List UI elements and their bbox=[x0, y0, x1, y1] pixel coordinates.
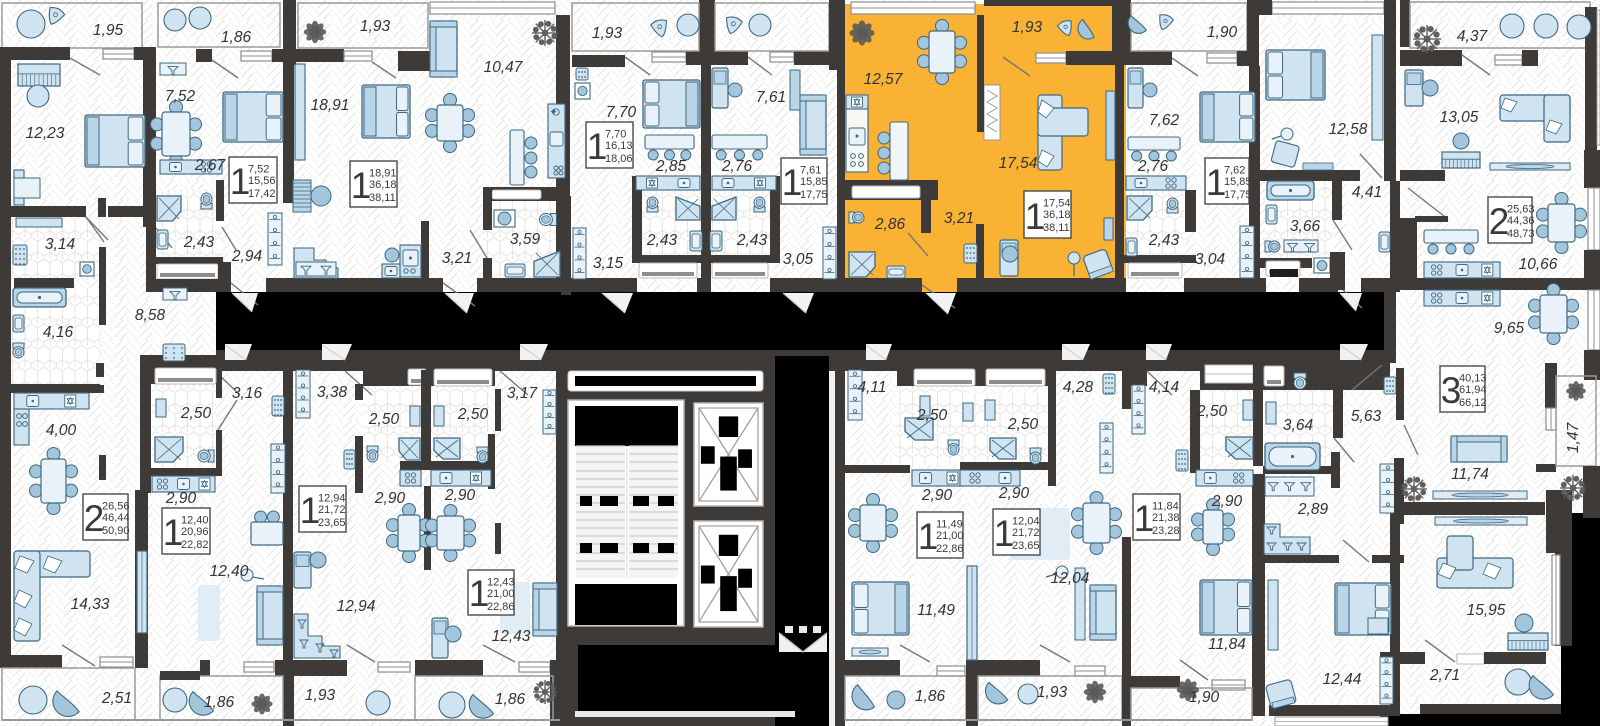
svg-text:2,50: 2,50 bbox=[457, 406, 489, 423]
svg-text:1,90: 1,90 bbox=[1207, 24, 1238, 41]
svg-text:4,41: 4,41 bbox=[1352, 184, 1382, 201]
svg-text:11,74: 11,74 bbox=[1451, 466, 1489, 483]
svg-text:7,61: 7,61 bbox=[756, 89, 786, 106]
svg-text:7,61: 7,61 bbox=[800, 165, 821, 177]
svg-text:1,86: 1,86 bbox=[495, 691, 526, 708]
svg-text:1,86: 1,86 bbox=[915, 688, 946, 705]
svg-text:18,91: 18,91 bbox=[369, 168, 397, 180]
svg-text:2,50: 2,50 bbox=[368, 411, 400, 428]
svg-text:1,95: 1,95 bbox=[93, 22, 124, 39]
svg-text:22,86: 22,86 bbox=[487, 601, 515, 613]
svg-text:23,65: 23,65 bbox=[1012, 540, 1040, 552]
svg-text:15,56: 15,56 bbox=[248, 175, 276, 187]
svg-text:18,91: 18,91 bbox=[311, 97, 350, 114]
svg-text:12,94: 12,94 bbox=[318, 493, 346, 505]
svg-text:2,50: 2,50 bbox=[1007, 416, 1039, 433]
svg-text:1,86: 1,86 bbox=[204, 694, 235, 711]
svg-text:2,50: 2,50 bbox=[180, 405, 212, 422]
svg-text:12,23: 12,23 bbox=[26, 125, 65, 142]
svg-text:15,85: 15,85 bbox=[1224, 176, 1252, 188]
svg-text:23,65: 23,65 bbox=[318, 517, 346, 529]
svg-text:23,28: 23,28 bbox=[1152, 525, 1180, 537]
svg-text:11,84: 11,84 bbox=[1208, 636, 1246, 653]
svg-text:4,16: 4,16 bbox=[43, 324, 74, 341]
svg-text:4,11: 4,11 bbox=[857, 379, 886, 396]
svg-text:9,65: 9,65 bbox=[1494, 320, 1525, 337]
svg-text:38,11: 38,11 bbox=[369, 192, 396, 204]
svg-text:4,00: 4,00 bbox=[46, 422, 77, 439]
svg-text:3,21: 3,21 bbox=[944, 210, 974, 227]
svg-text:7,62: 7,62 bbox=[1224, 165, 1245, 177]
svg-text:1,93: 1,93 bbox=[305, 687, 336, 704]
svg-text:15,85: 15,85 bbox=[800, 176, 828, 188]
svg-text:21,00: 21,00 bbox=[936, 530, 964, 542]
svg-text:2,43: 2,43 bbox=[646, 232, 678, 249]
svg-text:61,94: 61,94 bbox=[1459, 384, 1487, 396]
svg-text:50,90: 50,90 bbox=[102, 525, 130, 537]
svg-text:10,66: 10,66 bbox=[1519, 256, 1558, 273]
svg-text:1,90: 1,90 bbox=[1189, 689, 1220, 706]
svg-text:2,67: 2,67 bbox=[194, 157, 227, 174]
svg-text:17,42: 17,42 bbox=[248, 188, 276, 200]
svg-text:2,90: 2,90 bbox=[998, 485, 1030, 502]
svg-text:3,04: 3,04 bbox=[1195, 251, 1226, 268]
svg-text:21,38: 21,38 bbox=[1152, 512, 1180, 524]
svg-text:4,28: 4,28 bbox=[1063, 379, 1094, 396]
svg-text:12,43: 12,43 bbox=[492, 628, 531, 645]
svg-text:2,76: 2,76 bbox=[721, 158, 753, 175]
svg-text:2,76: 2,76 bbox=[1137, 158, 1169, 175]
svg-text:36,18: 36,18 bbox=[369, 179, 397, 191]
svg-text:3,05: 3,05 bbox=[783, 251, 814, 268]
svg-text:2,71: 2,71 bbox=[1429, 667, 1460, 684]
svg-text:46,44: 46,44 bbox=[102, 512, 130, 524]
svg-text:16,13: 16,13 bbox=[605, 140, 633, 152]
svg-text:3,38: 3,38 bbox=[317, 384, 348, 401]
svg-text:15,95: 15,95 bbox=[1467, 602, 1506, 619]
svg-text:2,43: 2,43 bbox=[183, 234, 215, 251]
svg-text:1,93: 1,93 bbox=[1037, 684, 1068, 701]
svg-text:17,75: 17,75 bbox=[800, 189, 828, 201]
svg-text:4,14: 4,14 bbox=[1149, 379, 1180, 396]
svg-text:1,93: 1,93 bbox=[360, 18, 391, 35]
svg-text:1,93: 1,93 bbox=[1012, 19, 1043, 36]
svg-text:2,85: 2,85 bbox=[655, 158, 687, 175]
svg-text:44,36: 44,36 bbox=[1507, 215, 1535, 227]
svg-text:26,56: 26,56 bbox=[102, 501, 130, 513]
svg-text:2,50: 2,50 bbox=[1196, 403, 1228, 420]
svg-text:12,58: 12,58 bbox=[1329, 121, 1368, 138]
svg-text:7,70: 7,70 bbox=[606, 104, 637, 121]
svg-text:2,86: 2,86 bbox=[874, 216, 906, 233]
svg-text:2,89: 2,89 bbox=[1297, 501, 1329, 518]
svg-text:12,57: 12,57 bbox=[864, 71, 904, 88]
svg-text:1,47: 1,47 bbox=[1565, 422, 1582, 454]
svg-text:14,33: 14,33 bbox=[71, 596, 110, 613]
svg-text:12,40: 12,40 bbox=[210, 563, 249, 580]
svg-text:3,59: 3,59 bbox=[510, 231, 541, 248]
svg-text:3,17: 3,17 bbox=[507, 385, 539, 402]
svg-text:12,04: 12,04 bbox=[1051, 570, 1090, 587]
svg-text:22,86: 22,86 bbox=[936, 543, 964, 555]
svg-text:7,70: 7,70 bbox=[605, 129, 626, 141]
svg-text:12,44: 12,44 bbox=[1323, 671, 1362, 688]
svg-text:20,96: 20,96 bbox=[181, 526, 209, 538]
svg-text:2,90: 2,90 bbox=[165, 490, 197, 507]
svg-text:11,84: 11,84 bbox=[1152, 501, 1179, 513]
svg-text:11,49: 11,49 bbox=[917, 602, 955, 619]
svg-text:21,00: 21,00 bbox=[487, 588, 515, 600]
svg-text:2,90: 2,90 bbox=[921, 487, 953, 504]
svg-text:36,18: 36,18 bbox=[1043, 209, 1071, 221]
svg-text:2,50: 2,50 bbox=[916, 407, 948, 424]
svg-text:2,90: 2,90 bbox=[1211, 493, 1243, 510]
svg-text:40,13: 40,13 bbox=[1459, 373, 1487, 385]
svg-text:3,16: 3,16 bbox=[232, 385, 263, 402]
svg-text:2,90: 2,90 bbox=[374, 490, 406, 507]
svg-text:3,64: 3,64 bbox=[1283, 417, 1314, 434]
svg-text:22,82: 22,82 bbox=[181, 539, 209, 551]
svg-text:48,73: 48,73 bbox=[1507, 228, 1535, 240]
svg-text:10,47: 10,47 bbox=[484, 59, 524, 76]
svg-text:2,94: 2,94 bbox=[231, 248, 263, 265]
svg-text:12,43: 12,43 bbox=[487, 577, 515, 589]
svg-text:12,40: 12,40 bbox=[181, 515, 209, 527]
svg-text:3,15: 3,15 bbox=[593, 255, 624, 272]
svg-text:7,62: 7,62 bbox=[1149, 112, 1180, 129]
svg-text:12,94: 12,94 bbox=[337, 598, 376, 615]
svg-text:3,14: 3,14 bbox=[45, 236, 76, 253]
svg-text:3,21: 3,21 bbox=[442, 250, 472, 267]
svg-text:11,49: 11,49 bbox=[936, 519, 963, 531]
svg-text:1,86: 1,86 bbox=[221, 29, 252, 46]
svg-text:21,72: 21,72 bbox=[318, 504, 346, 516]
svg-text:3,66: 3,66 bbox=[1290, 218, 1321, 235]
svg-text:5,63: 5,63 bbox=[1351, 408, 1382, 425]
svg-text:21,72: 21,72 bbox=[1012, 527, 1040, 539]
svg-text:4,37: 4,37 bbox=[1457, 28, 1489, 45]
svg-text:38,11: 38,11 bbox=[1043, 222, 1070, 234]
svg-text:17,54: 17,54 bbox=[999, 155, 1038, 172]
svg-text:2,51: 2,51 bbox=[101, 690, 132, 707]
svg-text:7,52: 7,52 bbox=[165, 88, 196, 105]
svg-text:2,43: 2,43 bbox=[1148, 232, 1180, 249]
svg-text:17,75: 17,75 bbox=[1224, 189, 1252, 201]
svg-text:12,04: 12,04 bbox=[1012, 516, 1040, 528]
svg-text:17,54: 17,54 bbox=[1043, 198, 1071, 210]
svg-text:13,05: 13,05 bbox=[1440, 109, 1479, 126]
svg-text:1,93: 1,93 bbox=[592, 25, 623, 42]
svg-text:8,58: 8,58 bbox=[135, 307, 166, 324]
svg-text:18,06: 18,06 bbox=[605, 153, 633, 165]
svg-text:66,12: 66,12 bbox=[1459, 397, 1487, 409]
svg-text:7,52: 7,52 bbox=[248, 164, 269, 176]
svg-text:2,43: 2,43 bbox=[736, 232, 768, 249]
svg-text:25,63: 25,63 bbox=[1507, 204, 1535, 216]
svg-text:2,90: 2,90 bbox=[444, 487, 476, 504]
